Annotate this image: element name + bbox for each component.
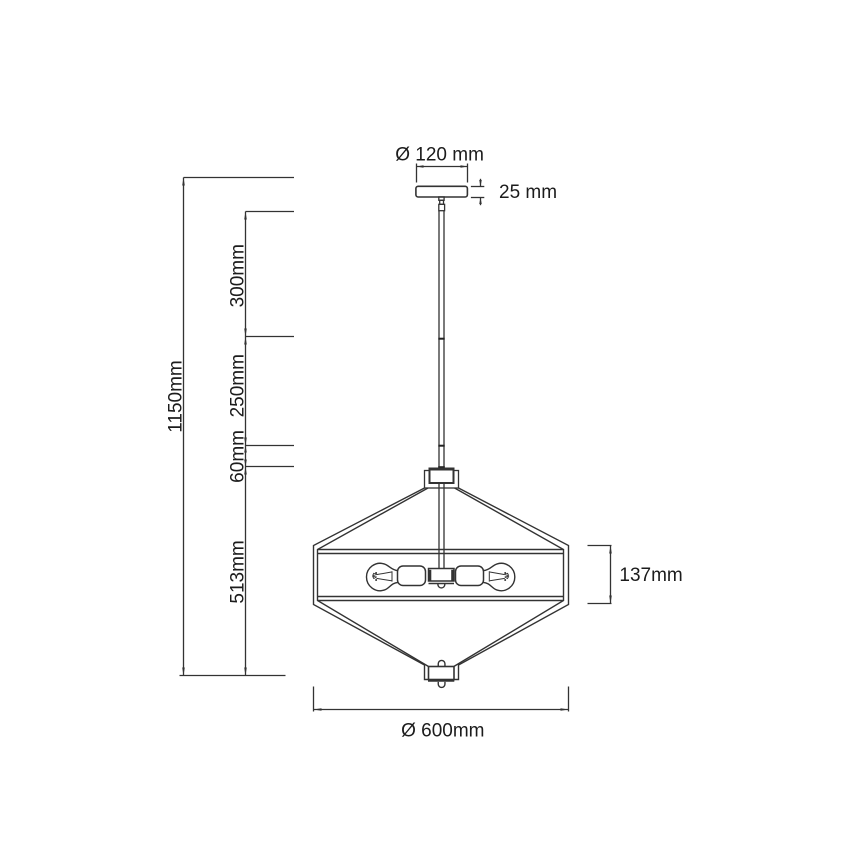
svg-text:250mm: 250mm	[228, 354, 249, 417]
svg-text:300mm: 300mm	[228, 244, 249, 307]
svg-text:Ø 120 mm: Ø 120 mm	[395, 145, 484, 166]
svg-text:1150mm: 1150mm	[165, 360, 186, 433]
svg-text:Ø 600mm: Ø 600mm	[401, 720, 484, 741]
svg-text:25 mm: 25 mm	[499, 182, 557, 203]
svg-text:137mm: 137mm	[619, 565, 682, 586]
svg-text:60mm: 60mm	[228, 430, 249, 483]
svg-text:513mm: 513mm	[228, 540, 249, 603]
